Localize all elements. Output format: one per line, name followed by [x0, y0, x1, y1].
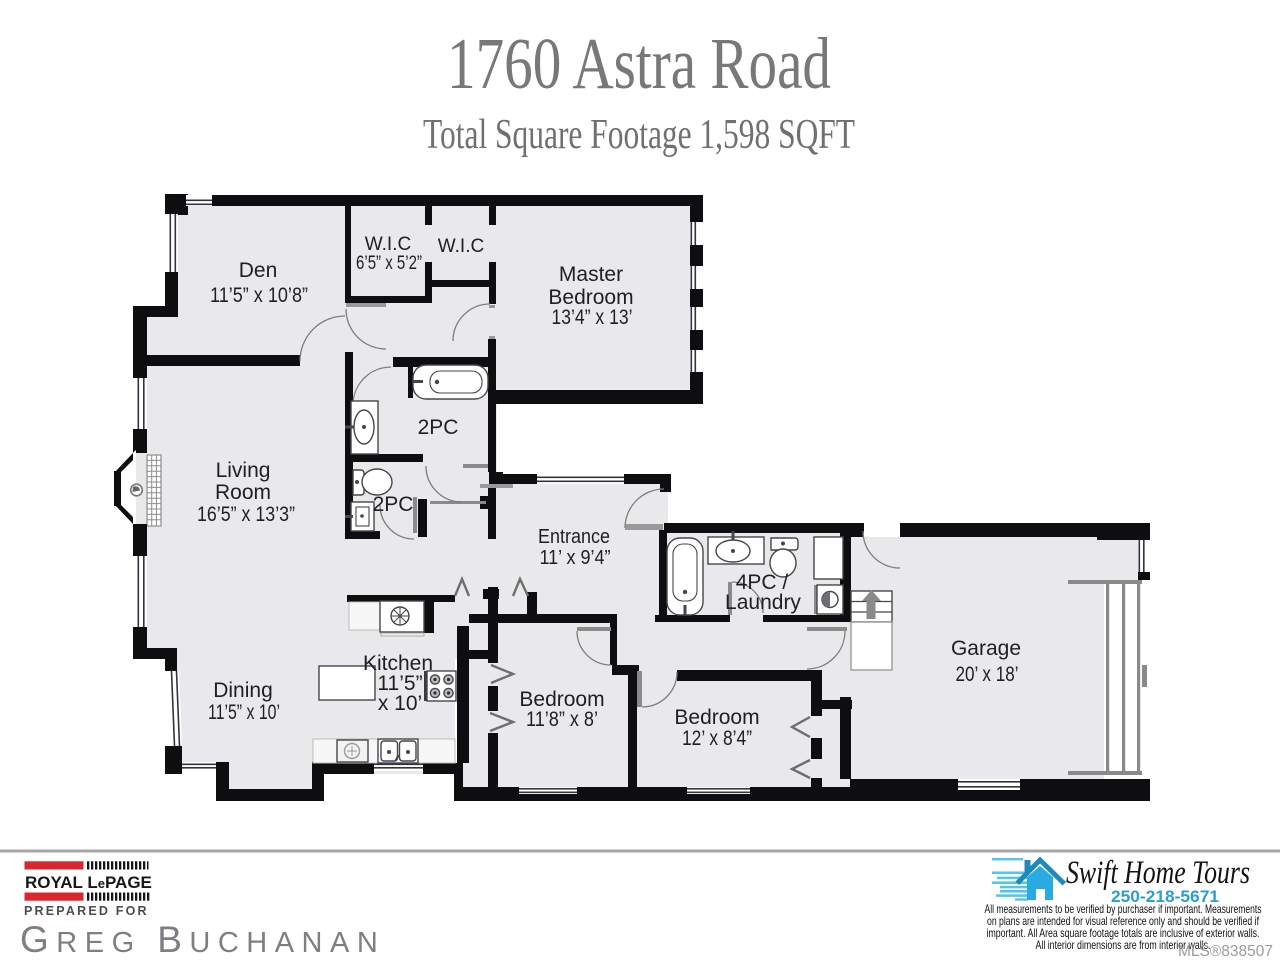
svg-text:2PC: 2PC	[418, 416, 459, 439]
svg-text:Master: Master	[559, 263, 623, 286]
svg-text:MLS®838507: MLS®838507	[1178, 943, 1273, 960]
svg-text:2PC: 2PC	[373, 493, 414, 516]
svg-text:Swift Home Tours: Swift Home Tours	[1066, 855, 1250, 891]
svg-text:Bedroom: Bedroom	[674, 706, 759, 729]
svg-text:Entrance: Entrance	[538, 526, 610, 548]
svg-text:11’5” x 10’: 11’5” x 10’	[208, 701, 280, 724]
svg-text:12’ x 8’4”: 12’ x 8’4”	[682, 727, 752, 750]
svg-text:Laundry: Laundry	[725, 591, 801, 614]
svg-text:6’5” x 5’2”: 6’5” x 5’2”	[356, 253, 422, 274]
svg-text:W.I.C: W.I.C	[365, 234, 411, 255]
svg-text:PREPARED FOR: PREPARED FOR	[24, 904, 149, 918]
svg-text:13’4” x 13’: 13’4” x 13’	[552, 306, 633, 329]
svg-text:20’ x 18’: 20’ x 18’	[956, 663, 1019, 686]
svg-text:11’8” x 8’: 11’8” x 8’	[526, 708, 598, 731]
svg-text:Dining: Dining	[213, 679, 273, 702]
svg-text:Garage: Garage	[951, 637, 1021, 660]
svg-text:Total Square Footage 1,598 SQF: Total Square Footage 1,598 SQFT	[423, 112, 855, 158]
svg-text:Room: Room	[215, 481, 271, 504]
svg-text:11’ x 9’4”: 11’ x 9’4”	[540, 547, 611, 569]
svg-text:W.I.C: W.I.C	[438, 236, 484, 257]
svg-text:Den: Den	[239, 259, 278, 282]
svg-text:x 10’: x 10’	[378, 692, 422, 715]
svg-text:16’5” x 13’3”: 16’5” x 13’3”	[197, 503, 295, 526]
svg-text:Living: Living	[216, 459, 271, 482]
svg-text:ROYAL LePAGE: ROYAL LePAGE	[25, 873, 152, 892]
svg-text:11’5” x 10’8”: 11’5” x 10’8”	[210, 284, 308, 307]
svg-text:1760 Astra Road: 1760 Astra Road	[447, 23, 831, 104]
